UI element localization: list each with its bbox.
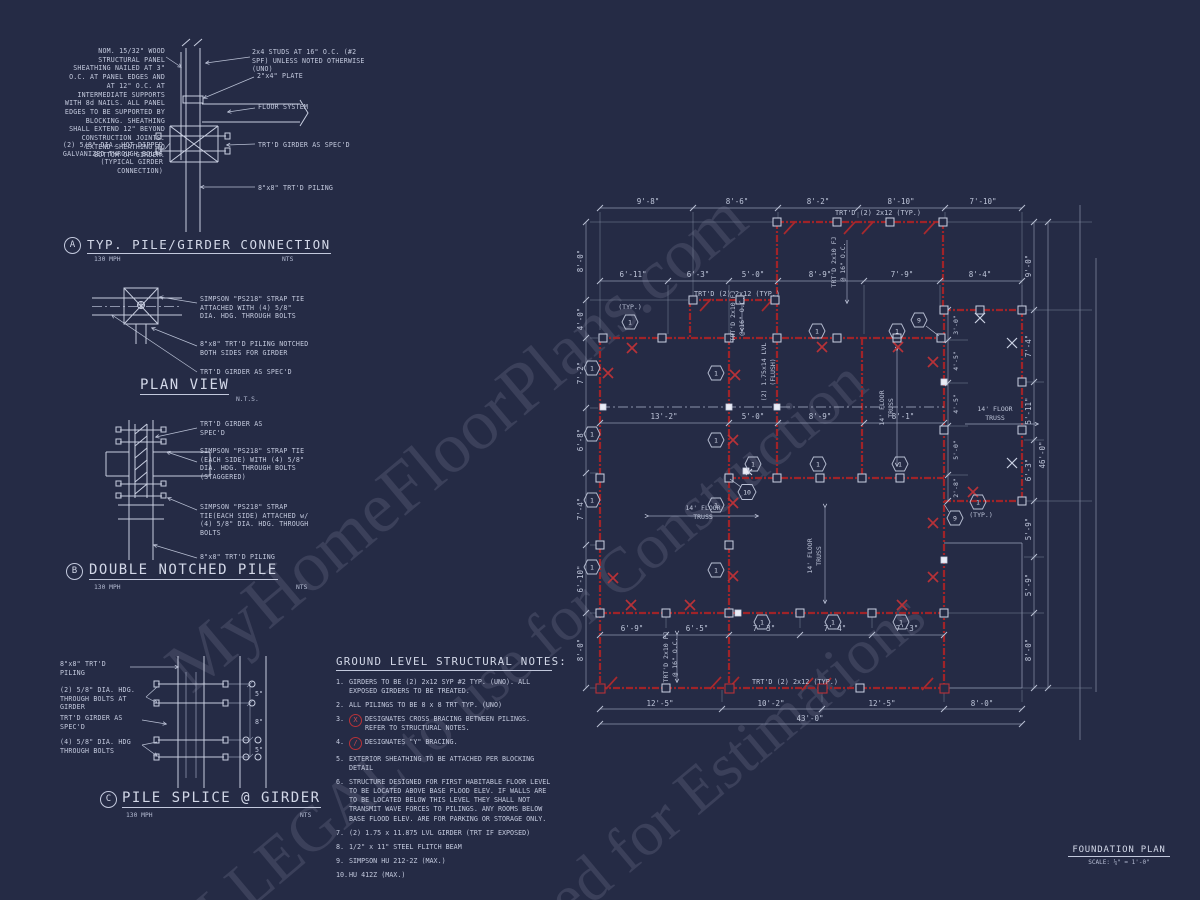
dim: 7'-3" bbox=[753, 624, 776, 633]
detail-plan-view-drawing bbox=[92, 288, 197, 372]
truss-label: 14' FLOOR bbox=[977, 405, 1012, 413]
dim-total-width: 43'-0" bbox=[796, 714, 823, 723]
note-text: DESIGNATES CROSS BRACING BETWEEN PILINGS… bbox=[365, 715, 552, 733]
note-item: 9.SIMPSON HU 212-2Z (MAX.) bbox=[336, 857, 552, 866]
note-text: HU 412Z (MAX.) bbox=[349, 871, 405, 880]
note-item: 7.(2) 1.75 x 11.875 LVL GIRDER (TRT IF E… bbox=[336, 829, 552, 838]
dim: 5'-0" bbox=[952, 440, 960, 460]
joist-label: @ 16" O.C. bbox=[839, 242, 847, 281]
truss-label: 14' FLOOR bbox=[806, 538, 814, 573]
sheet-title: FOUNDATION PLAN bbox=[1068, 845, 1170, 857]
detail-b-wind: 130 MPH bbox=[94, 584, 121, 591]
keynote: 1 bbox=[714, 567, 718, 575]
note-number: 2. bbox=[336, 701, 349, 710]
detail-b-scale: NTS bbox=[296, 584, 307, 591]
dim: 6'-5" bbox=[686, 624, 709, 633]
dim: 8'-0" bbox=[576, 639, 585, 662]
dim: 7'-10" bbox=[969, 197, 996, 206]
keynote: 1 bbox=[815, 328, 819, 336]
dim: 8'-0" bbox=[1024, 639, 1033, 662]
structural-notes-title: GROUND LEVEL STRUCTURAL NOTES: bbox=[336, 655, 552, 671]
dim: 5'-0" bbox=[742, 412, 765, 421]
note-item: 8.1/2" x 11" STEEL FLITCH BEAM bbox=[336, 843, 552, 852]
keynote: 10 bbox=[743, 489, 751, 497]
dim: 12'-5" bbox=[868, 699, 895, 708]
dim: 7'-4" bbox=[824, 624, 847, 633]
dim: 13'-2" bbox=[650, 412, 677, 421]
dim: 9'-8" bbox=[637, 197, 660, 206]
detail-b-tag: B bbox=[66, 563, 83, 580]
detail-a-wind: 130 MPH bbox=[94, 256, 121, 263]
dim: 8'-6" bbox=[726, 197, 749, 206]
detail-a-piling-label: 8"x8" TRT'D PILING bbox=[258, 184, 378, 193]
note-text: GIRDERS TO BE (2) 2x12 SYP #2 TYP. (UNO)… bbox=[349, 678, 552, 696]
foundation-plan-drawing: 1 1 1 9 1 1 1 1 1 1 1 1 1 1 1 10 9 1 1 1 bbox=[576, 197, 1096, 740]
detail-a-girder-label: TRT'D GIRDER AS SPEC'D bbox=[258, 141, 388, 150]
keynote: 1 bbox=[816, 461, 820, 469]
keynote: 1 bbox=[590, 365, 594, 373]
truss-label: TRUSS bbox=[815, 546, 823, 566]
keynote: 1 bbox=[714, 437, 718, 445]
note-text: DESIGNATES "Y" BRACING. bbox=[365, 738, 458, 750]
dim: 9'-0" bbox=[1024, 255, 1033, 278]
plan-view-scale: N.T.S. bbox=[236, 396, 259, 403]
note-item: 2.ALL PILINGS TO BE 8 x 8 TRT TYP. (UNO) bbox=[336, 701, 552, 710]
dim: 10'-2" bbox=[757, 699, 784, 708]
note-number: 7. bbox=[336, 829, 349, 838]
dim: 4'-0" bbox=[576, 308, 585, 331]
dim: 6'-9" bbox=[621, 624, 644, 633]
dim: 8'-9" bbox=[809, 270, 832, 279]
detail-b-girder-label: TRT'D GIRDER AS SPEC'D bbox=[200, 420, 290, 437]
truss-label: TRUSS bbox=[887, 398, 895, 418]
keynote: 1 bbox=[895, 328, 899, 336]
note-text: ALL PILINGS TO BE 8 x 8 TRT TYP. (UNO) bbox=[349, 701, 502, 710]
plan-view-strap-label: SIMPSON "PS218" STRAP TIE ATTACHED WITH … bbox=[200, 295, 312, 321]
girder-label: TRT'D (2) 2x12 (TYP.) bbox=[694, 290, 780, 298]
detail-b-piling-label: 8"x8" TRT'D PILING bbox=[200, 553, 320, 562]
detail-c-bolts4-label: (4) 5/8" DIA. HDG THROUGH BOLTS bbox=[60, 738, 146, 755]
note-item: 3.XDESIGNATES CROSS BRACING BETWEEN PILI… bbox=[336, 715, 552, 733]
detail-c-title: PILE SPLICE @ GIRDER bbox=[122, 790, 321, 808]
dim: 8'-9" bbox=[809, 412, 832, 421]
dim: 7'-3" bbox=[896, 624, 919, 633]
drawing-linework: 1 1 1 9 1 1 1 1 1 1 1 1 1 1 1 10 9 1 1 1 bbox=[0, 0, 1200, 900]
joist-label: TRT'D 2x10 FJ bbox=[729, 290, 737, 341]
dim: 8'-10" bbox=[887, 197, 914, 206]
dim: 2'-8" bbox=[952, 478, 960, 498]
detail-a-bolt-note: (2) 5/8" DIA. HOT DIPPED GALVANIZED THRO… bbox=[60, 141, 163, 176]
note-text: SIMPSON HU 212-2Z (MAX.) bbox=[349, 857, 446, 866]
note-number: 8. bbox=[336, 843, 349, 852]
dim: 5'-0" bbox=[742, 270, 765, 279]
keynote: 9 bbox=[917, 317, 921, 325]
detail-b-strap1-label: SIMPSON "PS218" STRAP TIE (EACH SIDE) WI… bbox=[200, 447, 312, 482]
detail-a-scale: NTS bbox=[282, 256, 293, 263]
keynote: 1 bbox=[898, 461, 902, 469]
note-number: 3. bbox=[336, 715, 349, 733]
dim: 8'-2" bbox=[807, 197, 830, 206]
joist-label: TRT'D 2x10 FJ bbox=[662, 631, 670, 682]
keynote: 1 bbox=[590, 431, 594, 439]
note-item: 1.GIRDERS TO BE (2) 2x12 SYP #2 TYP. (UN… bbox=[336, 678, 552, 696]
dim: 4'-5" bbox=[952, 394, 960, 414]
y-brace-symbol-icon: / bbox=[349, 737, 362, 750]
lvl-label: (FLUSH) bbox=[769, 358, 777, 385]
lvl-label: (2) 1.75x14 LVL bbox=[760, 343, 768, 402]
plan-view-title: PLAN VIEW bbox=[140, 377, 229, 395]
dim: 6'-8" bbox=[576, 429, 585, 452]
dim: 7'-9" bbox=[891, 270, 914, 279]
dim: 6'-3" bbox=[1024, 459, 1033, 482]
typ-label: (TYP.) bbox=[618, 303, 641, 311]
detail-a-tag: A bbox=[64, 237, 81, 254]
note-item: 10.HU 412Z (MAX.) bbox=[336, 871, 552, 880]
detail-b-title: DOUBLE NOTCHED PILE bbox=[89, 562, 278, 580]
dim: 12'-5" bbox=[646, 699, 673, 708]
keynote: 1 bbox=[590, 564, 594, 572]
detail-c-dim-mid: 8" bbox=[255, 718, 263, 727]
detail-c-tag: C bbox=[100, 791, 117, 808]
dim: 8'-1" bbox=[892, 412, 915, 421]
joist-label: @ 16" O.C. bbox=[738, 296, 746, 335]
dim: 8'-0" bbox=[576, 250, 585, 273]
note-number: 4. bbox=[336, 738, 349, 750]
dim: 8'-4" bbox=[969, 270, 992, 279]
plan-view-girder-label: TRT'D GIRDER AS SPEC'D bbox=[200, 368, 330, 377]
note-text: (2) 1.75 x 11.875 LVL GIRDER (TRT IF EXP… bbox=[349, 829, 530, 838]
detail-b-drawing bbox=[106, 420, 210, 560]
dim: 8'-0" bbox=[971, 699, 994, 708]
dim: 4'-5" bbox=[952, 351, 960, 371]
detail-c-drawing bbox=[130, 656, 266, 788]
girder-label: TRT'D (2) 2x12 (TYP.) bbox=[752, 678, 838, 686]
keynote: 1 bbox=[751, 461, 755, 469]
typ-label: (TYP.) bbox=[969, 511, 992, 519]
detail-b-strap2-label: SIMPSON "PS218" STRAP TIE(EACH SIDE) ATT… bbox=[200, 503, 322, 538]
truss-label: TRUSS bbox=[985, 414, 1005, 422]
pile-markers bbox=[596, 218, 1026, 693]
dim: 7'-4" bbox=[576, 498, 585, 521]
dim: 5'-9" bbox=[1024, 574, 1033, 597]
note-number: 9. bbox=[336, 857, 349, 866]
note-number: 10. bbox=[336, 871, 349, 880]
truss-label: 14' FLOOR bbox=[878, 390, 886, 425]
dim-total-height: 46'-0" bbox=[1038, 441, 1047, 468]
keynote: 1 bbox=[590, 497, 594, 505]
note-text: EXTERIOR SHEATHING TO BE ATTACHED PER BL… bbox=[349, 755, 552, 773]
sheet-scale: SCALE: ¼" = 1'-0" bbox=[1068, 859, 1170, 866]
keynote: 1 bbox=[628, 319, 632, 327]
note-text: STRUCTURE DESIGNED FOR FIRST HABITABLE F… bbox=[349, 778, 552, 823]
detail-c-scale: NTS bbox=[300, 812, 311, 819]
detail-a-floor-label: FLOOR SYSTEM bbox=[258, 103, 358, 112]
note-item: 5.EXTERIOR SHEATHING TO BE ATTACHED PER … bbox=[336, 755, 552, 773]
blueprint-sheet: MyHomeFloorPlans.com ILLEGAL to use for … bbox=[0, 0, 1200, 900]
detail-c-wind: 130 MPH bbox=[126, 812, 153, 819]
detail-c-girder-label: TRT'D GIRDER AS SPEC'D bbox=[60, 714, 140, 731]
dim: 3'-0" bbox=[952, 315, 960, 335]
note-item: 4./DESIGNATES "Y" BRACING. bbox=[336, 738, 552, 750]
detail-c-bolts2-label: (2) 5/8" DIA. HDG. THROUGH BOLTS AT GIRD… bbox=[60, 686, 146, 712]
dim: 6'-10" bbox=[576, 565, 585, 592]
structural-notes: GROUND LEVEL STRUCTURAL NOTES: 1.GIRDERS… bbox=[336, 655, 552, 885]
detail-c-dim-top: 5" bbox=[255, 690, 263, 699]
keynote-hexagons: 1 1 1 9 1 1 1 1 1 1 1 1 1 1 1 10 9 1 1 1 bbox=[584, 313, 986, 629]
dim: 7'-2" bbox=[576, 362, 585, 385]
girder-label: TRT'D (2) 2x12 (TYP.) bbox=[835, 209, 921, 217]
keynote: 9 bbox=[953, 515, 957, 523]
keynote: 1 bbox=[976, 499, 980, 507]
title-block: FOUNDATION PLAN SCALE: ¼" = 1'-0" bbox=[1068, 845, 1170, 866]
note-item: 6.STRUCTURE DESIGNED FOR FIRST HABITABLE… bbox=[336, 778, 552, 823]
dim: 7'-4" bbox=[1024, 335, 1033, 358]
detail-a-plate-label: 2"x4" PLATE bbox=[257, 72, 357, 81]
note-text: 1/2" x 11" STEEL FLITCH BEAM bbox=[349, 843, 462, 852]
truss-label: 14' FLOOR bbox=[685, 504, 720, 512]
dim: 5'-9" bbox=[1024, 518, 1033, 541]
joist-label: @ 16" O.C. bbox=[671, 637, 679, 676]
dim: 6'-11" bbox=[619, 270, 646, 279]
note-number: 5. bbox=[336, 755, 349, 773]
note-number: 6. bbox=[336, 778, 349, 823]
detail-a-studs-label: 2x4 STUDS AT 16" O.C. (#2 SPF) UNLESS NO… bbox=[252, 48, 370, 74]
detail-a-title: TYP. PILE/GIRDER CONNECTION bbox=[87, 237, 331, 254]
truss-label: TRUSS bbox=[693, 513, 713, 521]
keynote: 1 bbox=[714, 370, 718, 378]
plan-view-piling-label: 8"x8" TRT'D PILING NOTCHED BOTH SIDES FO… bbox=[200, 340, 312, 357]
detail-c-dim-bot: 5" bbox=[255, 746, 263, 755]
dim: 6'-3" bbox=[687, 270, 710, 279]
joist-label: TRT'D 2x10 FJ bbox=[830, 236, 838, 287]
dim: 5'-11" bbox=[1024, 397, 1033, 424]
cross-brace-symbol-icon: X bbox=[349, 714, 362, 727]
note-number: 1. bbox=[336, 678, 349, 696]
detail-c-piling-label: 8"x8" TRT'D PILING bbox=[60, 660, 132, 677]
